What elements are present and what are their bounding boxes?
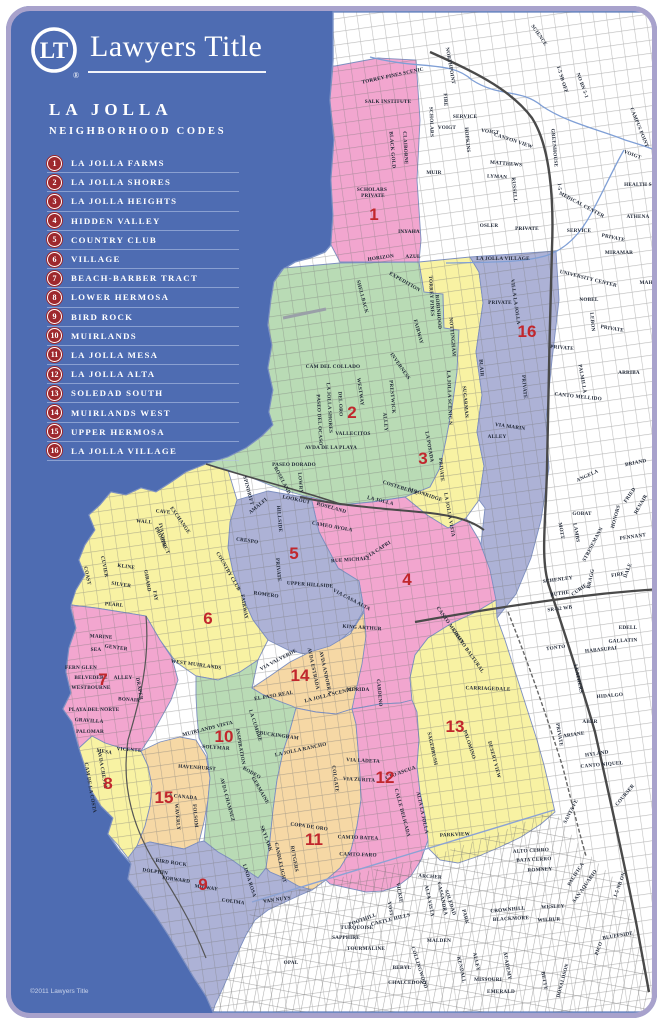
- brand-underline: [88, 71, 266, 73]
- legend-item: 3LA JOLLA HEIGHTS: [47, 192, 239, 211]
- region-number-5: 5: [289, 544, 298, 563]
- street-label: ARRIBA: [618, 370, 640, 376]
- legend-number-badge: 14: [47, 405, 62, 420]
- legend-number: 3: [53, 195, 57, 208]
- legend-number: 6: [53, 253, 57, 266]
- region-number-1: 1: [369, 205, 378, 224]
- region-number-12: 12: [376, 768, 395, 787]
- legend-item: 10MUIRLANDS: [47, 327, 239, 346]
- legend-item: 4HIDDEN VALLEY: [47, 212, 239, 231]
- legend-number: 16: [51, 444, 59, 457]
- street-label: FIRE: [442, 93, 448, 107]
- region-number-16: 16: [518, 322, 537, 341]
- street-label: LA JOLLA VILLAGE: [476, 256, 530, 262]
- lawyers-title-logo-icon: LT ®: [29, 24, 81, 80]
- legend-item-label: BIRD ROCK: [71, 312, 133, 322]
- street-label: MISSOURI: [474, 977, 502, 983]
- region-number-10: 10: [215, 727, 234, 746]
- street-label: ABER: [582, 719, 597, 725]
- legend-number: 15: [51, 425, 59, 438]
- street-label: HEALTH SCI: [624, 182, 658, 188]
- street-label: EMERALD: [487, 989, 515, 995]
- legend-number-badge: 10: [47, 328, 62, 343]
- legend-number: 14: [51, 406, 59, 419]
- street-label: PRIVATE: [488, 300, 512, 306]
- legend-item: 14MUIRLANDS WEST: [47, 403, 239, 422]
- legend-item-label: LA JOLLA ALTA: [71, 369, 155, 379]
- legend-number: 9: [53, 310, 57, 323]
- legend-number-badge: 2: [47, 175, 62, 190]
- street-label: SALK INSTITUTE: [365, 99, 412, 105]
- street-label: OPAL: [284, 960, 299, 966]
- legend-item-label: VILLAGE: [71, 254, 121, 264]
- street-label: SAPPHIRE: [332, 935, 360, 941]
- legend-item-label: HIDDEN VALLEY: [71, 216, 161, 226]
- page-title: LA JOLLA: [49, 100, 173, 120]
- logo-monogram: LT: [40, 38, 69, 63]
- legend-item-label: LA JOLLA FARMS: [71, 158, 165, 168]
- legend-item-label: SOLEDAD SOUTH: [71, 388, 163, 398]
- legend-item: 7BEACH-BARBER TRACT: [47, 269, 239, 288]
- legend-item: 15UPPER HERMOSA: [47, 423, 239, 442]
- legend-item-label: LA JOLLA SHORES: [71, 177, 171, 187]
- street-label: VOIGT: [438, 125, 457, 131]
- street-label: PLAYA DEL NORTE: [69, 707, 120, 713]
- street-label: EDELL: [619, 625, 638, 631]
- legend-item: 5COUNTRY CLUB: [47, 231, 239, 250]
- street-label: WILBUR: [537, 916, 560, 923]
- legend-number-badge: 13: [47, 386, 62, 401]
- legend-item: 9BIRD ROCK: [47, 308, 239, 327]
- legend-item: 11LA JOLLA MESA: [47, 346, 239, 365]
- legend-number-badge: 11: [47, 347, 62, 362]
- region-number-15: 15: [155, 788, 174, 807]
- street-label: SERVICE: [453, 114, 478, 120]
- street-label: WESLEY: [541, 903, 565, 910]
- legend-number: 4: [53, 214, 57, 227]
- region-number-8: 8: [103, 774, 112, 793]
- legend-number: 11: [51, 348, 59, 361]
- legend-item: 16LA JOLLA VILLAGE: [47, 442, 239, 461]
- street-label: TOURMALINE: [347, 946, 386, 952]
- street-label: PALOMAR: [76, 729, 104, 735]
- region-number-7: 7: [98, 670, 107, 689]
- legend-item-label: UPPER HERMOSA: [71, 427, 165, 437]
- street-label: ALLEY: [114, 675, 133, 681]
- map-card: TORREY PINES SCENICSALK INSTITUTESCHOLAR…: [0, 0, 663, 1024]
- legend-item-label: COUNTRY CLUB: [71, 235, 157, 245]
- street-label: AVDA DE LA PLAYA: [305, 445, 357, 451]
- legend-number: 13: [51, 387, 59, 400]
- street-label: OSLER: [480, 223, 499, 229]
- legend-item: 6VILLAGE: [47, 250, 239, 269]
- neighborhood-legend: 1LA JOLLA FARMS2LA JOLLA SHORES3LA JOLLA…: [47, 154, 239, 461]
- legend-number: 2: [53, 176, 57, 189]
- street-label: ATHENA: [626, 214, 649, 220]
- legend-item: 8LOWER HERMOSA: [47, 288, 239, 307]
- street-label: MUIR: [426, 170, 441, 176]
- region-number-6: 6: [203, 609, 212, 628]
- legend-number: 5: [53, 233, 57, 246]
- legend-number: 10: [51, 329, 59, 342]
- street-label: CAM DEL COLLADO: [306, 364, 361, 370]
- legend-number-badge: 6: [47, 252, 62, 267]
- street-label: MALDEN: [427, 938, 451, 944]
- street-label: CHALCEDONY: [388, 980, 428, 986]
- legend-number-badge: 3: [47, 194, 62, 209]
- brand-name: Lawyers Title: [90, 24, 262, 70]
- street-label: LYMAN: [487, 173, 507, 180]
- legend-number-badge: 9: [47, 309, 62, 324]
- street-label: SEA: [91, 647, 102, 653]
- legend-item: 2LA JOLLA SHORES: [47, 173, 239, 192]
- street-label: I-5: [556, 183, 563, 191]
- copyright-notice: ©2011 Lawyers Title: [30, 988, 89, 995]
- street-label: GOBAT: [572, 511, 592, 517]
- street-label: PRIVATE: [361, 193, 385, 199]
- page-subtitle: NEIGHBORHOOD CODES: [49, 126, 226, 137]
- legend-item: 13SOLEDAD SOUTH: [47, 384, 239, 403]
- legend-item-label: LA JOLLA HEIGHTS: [71, 196, 177, 206]
- legend-item-label: LA JOLLA MESA: [71, 350, 158, 360]
- legend-number: 1: [53, 157, 57, 170]
- street-label: INYAHA: [398, 229, 420, 235]
- street-label: TURQUOISE: [341, 925, 374, 931]
- legend-item-label: BEACH-BARBER TRACT: [71, 273, 198, 283]
- street-label: ALLEY: [488, 434, 507, 440]
- legend-number-badge: 16: [47, 443, 62, 458]
- street-label: AZUL: [405, 254, 421, 260]
- legend-item: 1LA JOLLA FARMS: [47, 154, 239, 173]
- legend-item-label: MUIRLANDS WEST: [71, 408, 171, 418]
- street-label: SERVICE: [567, 228, 592, 234]
- region-number-11: 11: [305, 830, 323, 849]
- legend-item: 12LA JOLLA ALTA: [47, 365, 239, 384]
- street-label: MIRAMAR: [605, 250, 633, 256]
- legend-number-badge: 8: [47, 290, 62, 305]
- legend-number-badge: 12: [47, 367, 62, 382]
- street-label: MAHAL: [640, 280, 661, 286]
- legend-item-label: LA JOLLA VILLAGE: [71, 446, 177, 456]
- legend-number: 8: [53, 291, 57, 304]
- region-number-3: 3: [418, 449, 427, 468]
- registered-mark-icon: ®: [73, 71, 79, 80]
- region-number-14: 14: [291, 666, 310, 685]
- legend-number: 12: [51, 368, 59, 381]
- legend-number-badge: 5: [47, 232, 62, 247]
- street-label: FERN GLEN: [65, 665, 97, 671]
- legend-number-badge: 4: [47, 213, 62, 228]
- legend-number-badge: 15: [47, 424, 62, 439]
- legend-item-label: LOWER HERMOSA: [71, 292, 169, 302]
- street-label: BERYL: [393, 965, 412, 971]
- street-label: VALLECITOS: [335, 431, 370, 437]
- legend-number-badge: 7: [47, 271, 62, 286]
- region-number-9: 9: [198, 875, 207, 894]
- legend-number: 7: [53, 272, 57, 285]
- region-number-2: 2: [347, 403, 356, 422]
- region-number-4: 4: [402, 570, 412, 589]
- legend-number-badge: 1: [47, 156, 62, 171]
- legend-item-label: MUIRLANDS: [71, 331, 137, 341]
- region-number-13: 13: [446, 717, 465, 736]
- street-label: NOBEL: [579, 297, 599, 303]
- street-label: PRIVATE: [515, 226, 539, 232]
- street-label: SCHOLARS: [427, 107, 434, 137]
